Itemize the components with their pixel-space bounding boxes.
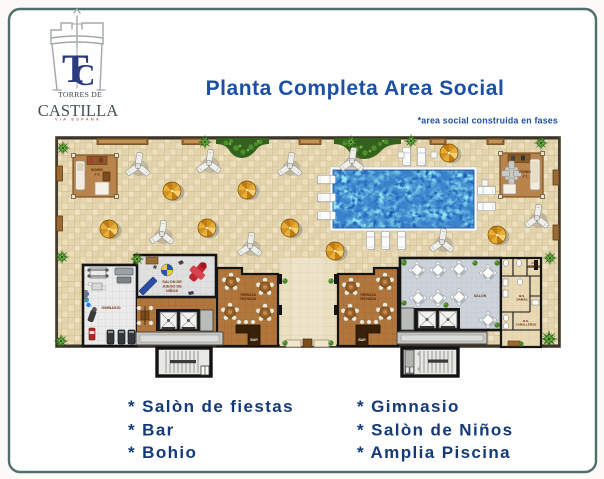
svg-text:C: C	[73, 57, 95, 92]
svg-text:* Bar: * Bar	[128, 421, 175, 440]
svg-text:*area social construida en fas: *area social construida en fases	[418, 116, 558, 126]
svg-text:TORRES DE: TORRES DE	[58, 90, 102, 99]
svg-text:NIÑOS: NIÑOS	[166, 288, 178, 293]
svg-text:JUEGO DE: JUEGO DE	[162, 285, 182, 289]
svg-text:# 1: # 1	[523, 174, 528, 178]
svg-text:* Amplia Piscina: * Amplia Piscina	[357, 443, 511, 462]
svg-text:BAR: BAR	[358, 338, 366, 342]
svg-text:TECHADA: TECHADA	[360, 297, 377, 301]
svg-text:BOMBAS: BOMBAS	[528, 264, 540, 268]
svg-text:# 2: # 2	[95, 172, 100, 176]
svg-text:* Bohio: * Bohio	[128, 443, 197, 462]
svg-text:* Salòn de Niños: * Salòn de Niños	[357, 421, 514, 440]
svg-text:* Gimnasio: * Gimnasio	[357, 397, 460, 416]
svg-text:VIA ESPANA: VIA ESPANA	[55, 117, 101, 122]
svg-text:SALON DE: SALON DE	[162, 280, 182, 284]
svg-text:SALON: SALON	[474, 294, 487, 298]
svg-text:BAR: BAR	[250, 338, 258, 342]
svg-text:* Salòn de fiestas: * Salòn de fiestas	[128, 397, 294, 416]
svg-text:DAMAS: DAMAS	[517, 298, 528, 302]
svg-text:Planta Completa Area Social: Planta Completa Area Social	[206, 77, 505, 100]
svg-text:GIMNASIO: GIMNASIO	[101, 306, 120, 310]
svg-text:BOHIO: BOHIO	[91, 168, 103, 172]
svg-text:BOHIO: BOHIO	[519, 170, 531, 174]
svg-text:TECHADA: TECHADA	[240, 297, 257, 301]
svg-text:CABALLEROS: CABALLEROS	[516, 323, 537, 327]
